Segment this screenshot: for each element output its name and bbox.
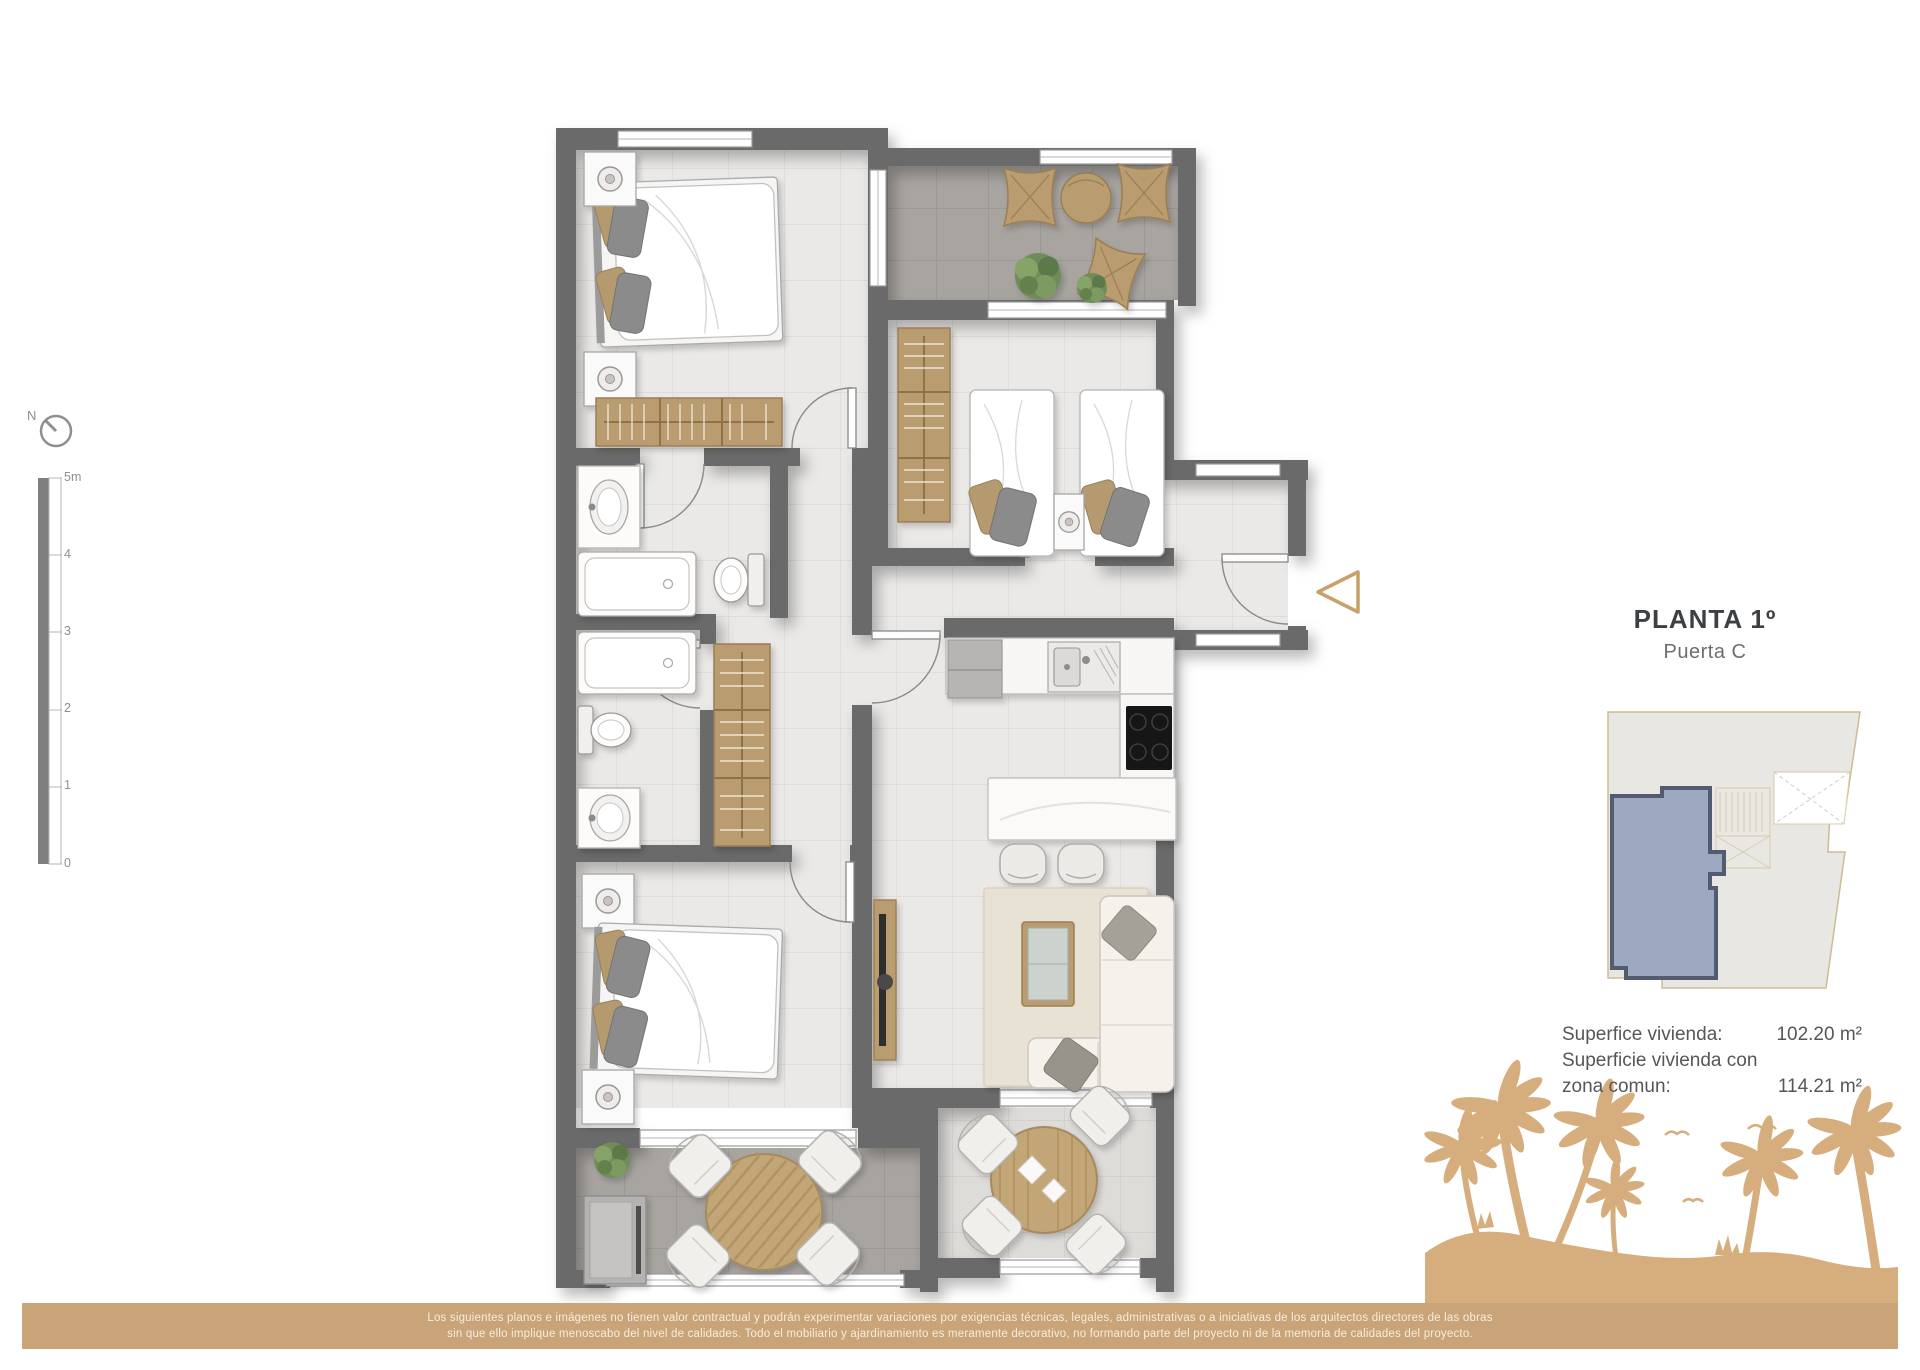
terrace-cabinet [584,1196,646,1284]
entrance-arrow-icon [1318,572,1358,612]
hall-wardrobe [714,644,770,846]
bedroom3-bed [589,923,782,1079]
terrace-plant [1015,253,1061,299]
terrace-lounge-chair [1118,164,1170,222]
bedroom1-nightstand [584,152,636,206]
bedroom3-nightstand [582,874,634,928]
key-plan-unit-highlight [1612,788,1724,978]
coffee-table [1022,922,1074,1006]
kitchen-sink [1048,642,1120,692]
disclaimer-line-2: sin que ello implique menoscabo del nive… [22,1326,1898,1342]
bathroom2-bathtub [578,632,696,694]
bathroom1-bathtub [578,552,696,616]
door-subtitle: Puerta C [1560,641,1850,664]
surface-label: Superfice vivienda: [1562,1022,1723,1048]
plan-title-block: PLANTA 1º Puerta C [1560,604,1850,664]
terrace-plant [594,1142,630,1178]
bedroom3-nightstand [582,1070,634,1124]
scale-tick-label: 5m [64,470,81,484]
north-label: N [27,408,36,423]
kitchen-island [988,778,1176,840]
scale-tick-label: 4 [64,547,71,561]
scale-tick-label: 0 [64,856,71,870]
page: N 5m 4 3 2 1 0 PLANTA 1º Puerta C Superf… [0,0,1920,1370]
tv-unit [874,900,896,1060]
scale-bar [38,478,62,864]
key-plan [1608,712,1860,988]
surface-row: zona comun: 114.21 m² [1562,1074,1862,1100]
bar-stool [1058,844,1104,884]
surface-info: Superfice vivienda: 102.20 m² Superficie… [1562,1022,1862,1100]
bedroom2-twin-bed [1080,390,1164,556]
cooktop [1126,706,1172,770]
bathroom2-sink [578,788,640,848]
terrace-side-table [1061,173,1111,223]
surface-row: Superficie vivienda con [1562,1048,1862,1074]
scale-tick-label: 3 [64,624,71,638]
scale-tick-label: 1 [64,778,71,792]
north-compass-icon [41,416,71,446]
surface-label: Superficie vivienda con [1562,1048,1757,1074]
bar-stool [1000,844,1046,884]
surface-label: zona comun: [1562,1074,1671,1100]
floor-title: PLANTA 1º [1560,604,1850,635]
floor-plan-drawing [0,0,1920,1370]
disclaimer-bar: Los siguientes planos e imágenes no tien… [22,1303,1898,1349]
terrace-lounge-chair [1004,168,1056,226]
bathroom1-sink [578,466,640,548]
bedroom2-wardrobe [898,328,950,522]
terrace-plant [1077,273,1107,303]
bedroom2-nightstand [1054,494,1084,550]
bedroom2-twin-bed [967,390,1054,556]
scale-tick-label: 2 [64,701,71,715]
bedroom1-wardrobe [596,398,782,446]
surface-value: 114.21 m² [1778,1074,1862,1100]
bathroom1-toilet [714,554,764,606]
disclaimer-line-1: Los siguientes planos e imágenes no tien… [22,1310,1898,1326]
surface-row: Superfice vivienda: 102.20 m² [1562,1022,1862,1048]
surface-value: 102.20 m² [1776,1022,1862,1048]
